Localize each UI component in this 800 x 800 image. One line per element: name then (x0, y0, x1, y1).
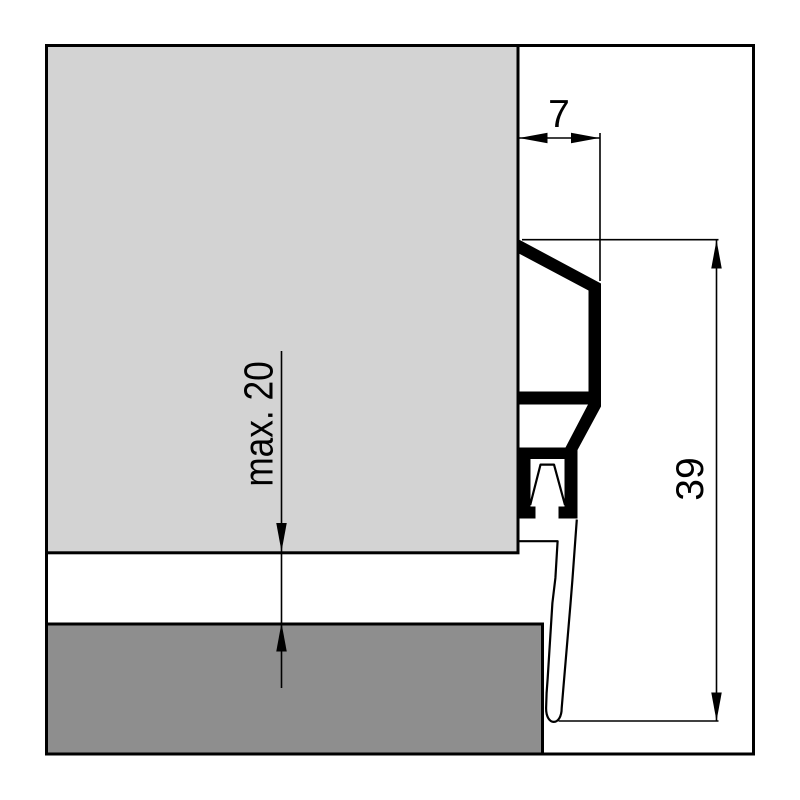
svg-text:max. 20: max. 20 (236, 361, 282, 486)
svg-text:7: 7 (548, 93, 570, 136)
svg-text:39: 39 (669, 457, 712, 500)
